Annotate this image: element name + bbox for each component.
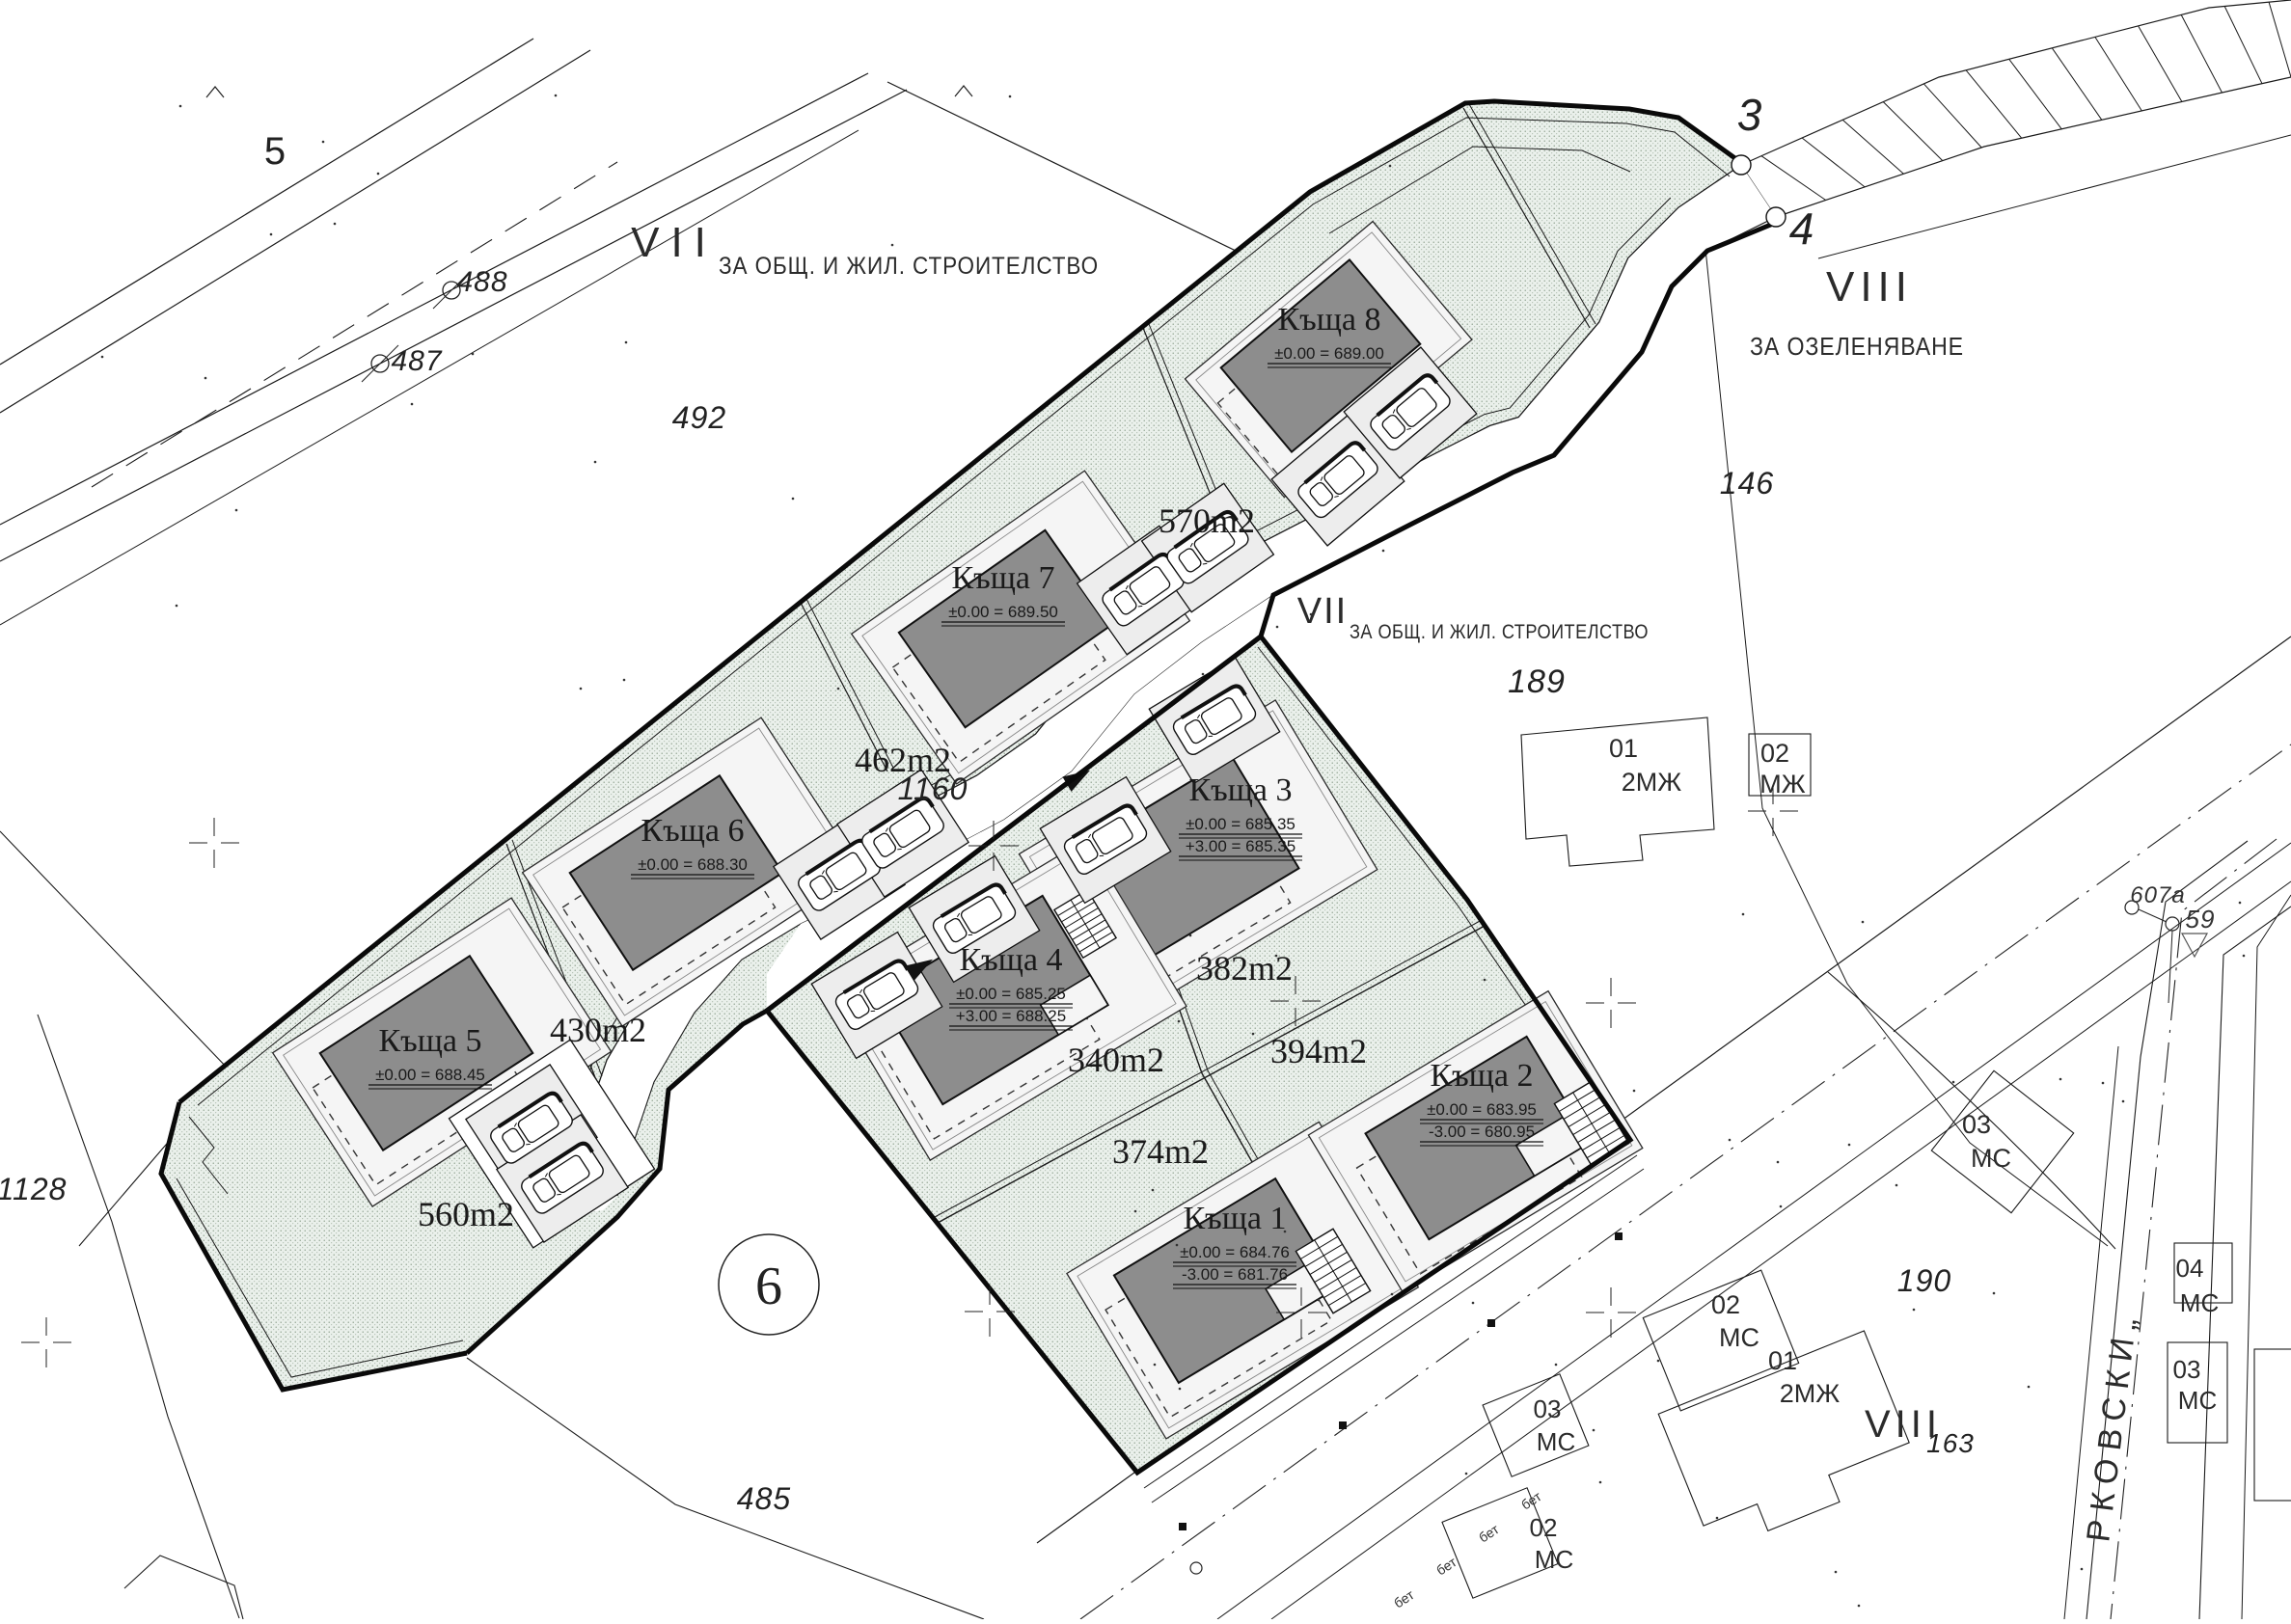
svg-text:189: 189	[1508, 663, 1566, 700]
svg-text:±0.00 = 689.50: ±0.00 = 689.50	[948, 603, 1058, 621]
svg-text:03: 03	[1534, 1394, 1562, 1423]
svg-text:394m2: 394m2	[1270, 1032, 1367, 1070]
svg-text:VII: VII	[631, 219, 718, 266]
svg-text:607a: 607a	[2130, 882, 2185, 908]
svg-text:4: 4	[1789, 203, 1815, 254]
svg-text:МС: МС	[2178, 1386, 2217, 1415]
svg-text:МС: МС	[1535, 1545, 1573, 1574]
svg-text:5: 5	[264, 130, 287, 173]
svg-text:382m2: 382m2	[1196, 949, 1293, 988]
svg-text:03: 03	[2173, 1355, 2201, 1384]
svg-text:VII: VII	[1297, 591, 1348, 632]
svg-text:487: 487	[391, 345, 442, 377]
svg-text:Къща 1: Къща 1	[1183, 1201, 1286, 1236]
svg-text:МЖ: МЖ	[1759, 770, 1805, 798]
svg-text:Къща 7: Къща 7	[951, 560, 1054, 596]
svg-text:Къща 5: Къща 5	[378, 1023, 481, 1059]
svg-text:2МЖ: 2МЖ	[1622, 768, 1682, 797]
svg-text:560m2: 560m2	[418, 1195, 514, 1233]
svg-text:ЗА ОБЩ. И ЖИЛ. СТРОИТЕЛСТВО: ЗА ОБЩ. И ЖИЛ. СТРОИТЕЛСТВО	[719, 253, 1099, 280]
svg-text:485: 485	[737, 1481, 791, 1516]
svg-text:570m2: 570m2	[1159, 501, 1255, 540]
svg-text:430m2: 430m2	[550, 1011, 646, 1049]
svg-text:Къща 8: Къща 8	[1277, 302, 1380, 338]
svg-text:190: 190	[1897, 1263, 1951, 1298]
svg-text:МС: МС	[1719, 1323, 1759, 1352]
svg-text:МС: МС	[2180, 1288, 2219, 1317]
svg-text:488: 488	[456, 266, 507, 298]
svg-text:VIII: VIII	[1826, 263, 1913, 311]
svg-text:02: 02	[1711, 1290, 1740, 1319]
svg-text:±0.00 = 685.35: ±0.00 = 685.35	[1186, 815, 1296, 833]
svg-text:Къща 2: Къща 2	[1430, 1058, 1533, 1094]
svg-text:Къща 4: Къща 4	[959, 942, 1062, 978]
svg-text:±0.00 = 684.76: ±0.00 = 684.76	[1180, 1243, 1290, 1261]
svg-text:02: 02	[1530, 1513, 1558, 1542]
svg-text:03: 03	[1962, 1110, 1991, 1139]
svg-text:VIII: VIII	[1865, 1403, 1942, 1446]
svg-text:492: 492	[672, 400, 726, 435]
svg-text:±0.00 = 688.45: ±0.00 = 688.45	[375, 1066, 485, 1084]
svg-text:374m2: 374m2	[1112, 1132, 1209, 1171]
svg-text:01: 01	[1609, 734, 1638, 763]
svg-text:146: 146	[1720, 466, 1774, 501]
svg-text:02: 02	[1760, 739, 1789, 768]
svg-text:ЗА ОБЩ. И ЖИЛ. СТРОИТЕЛСТВО: ЗА ОБЩ. И ЖИЛ. СТРОИТЕЛСТВО	[1350, 621, 1649, 643]
svg-text:1128: 1128	[0, 1172, 67, 1206]
svg-text:+3.00 = 685.35: +3.00 = 685.35	[1186, 837, 1296, 855]
svg-text:±0.00 = 685.25: ±0.00 = 685.25	[956, 985, 1066, 1003]
svg-text:ЗА ОЗЕЛЕНЯВАНЕ: ЗА ОЗЕЛЕНЯВАНЕ	[1750, 332, 1964, 361]
svg-text:2МЖ: 2МЖ	[1780, 1379, 1841, 1408]
svg-text:04: 04	[2176, 1254, 2204, 1283]
svg-text:59: 59	[2186, 905, 2216, 934]
svg-text:340m2: 340m2	[1068, 1041, 1164, 1079]
svg-text:+3.00 = 688.25: +3.00 = 688.25	[956, 1007, 1066, 1025]
svg-text:1160: 1160	[898, 771, 968, 806]
svg-text:01: 01	[1768, 1346, 1797, 1375]
svg-text:-3.00 = 680.95: -3.00 = 680.95	[1429, 1123, 1535, 1141]
svg-text:±0.00 = 689.00: ±0.00 = 689.00	[1274, 344, 1384, 363]
svg-text:±0.00 = 688.30: ±0.00 = 688.30	[638, 855, 748, 874]
svg-text:±0.00 = 683.95: ±0.00 = 683.95	[1427, 1100, 1537, 1119]
svg-text:3: 3	[1737, 90, 1763, 140]
svg-text:Къща 3: Къща 3	[1188, 772, 1292, 808]
svg-text:МС: МС	[1537, 1427, 1575, 1456]
svg-text:Къща 6: Къща 6	[641, 813, 744, 849]
svg-text:МС: МС	[1971, 1144, 2011, 1173]
svg-text:6: 6	[755, 1257, 782, 1316]
svg-text:-3.00 = 681.76: -3.00 = 681.76	[1182, 1265, 1288, 1284]
